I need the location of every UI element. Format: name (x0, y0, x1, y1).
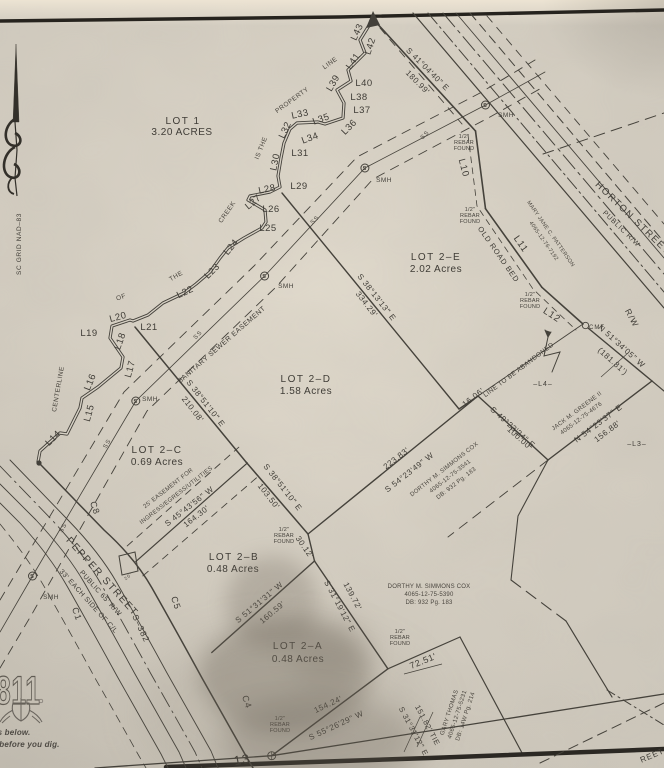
svg-text:SMH: SMH (278, 283, 294, 290)
svg-text:1.58 Acres: 1.58 Acres (280, 386, 332, 397)
svg-text:–L4–: –L4– (533, 381, 553, 388)
svg-text:L29: L29 (290, 181, 307, 192)
svg-text:3.20 ACRES: 3.20 ACRES (151, 127, 212, 138)
svg-text:LOT 2–E: LOT 2–E (411, 252, 461, 263)
svg-text:S: S (262, 274, 267, 280)
svg-text:FOUND: FOUND (454, 146, 475, 152)
svg-text:SMH: SMH (43, 594, 59, 601)
svg-text:L21: L21 (140, 322, 157, 333)
svg-text:FOUND: FOUND (460, 219, 481, 225)
svg-text:FOUND: FOUND (520, 304, 541, 310)
svg-text:4065-12-75-5390: 4065-12-75-5390 (404, 592, 454, 598)
svg-text:SMH: SMH (498, 112, 514, 119)
svg-text:–L3–: –L3– (627, 441, 647, 448)
svg-text:SMH: SMH (142, 396, 158, 403)
svg-text:S: S (363, 166, 368, 172)
svg-text:LOT 1: LOT 1 (165, 116, 200, 127)
svg-text:ll before you dig.: ll before you dig. (0, 740, 60, 749)
svg-text:SC GRID NAD–83: SC GRID NAD–83 (16, 213, 23, 275)
svg-text:L31: L31 (291, 148, 308, 159)
svg-text:DORTHY M. SIMMONS COX: DORTHY M. SIMMONS COX (388, 584, 471, 590)
svg-text:DB: 932 Pg. 183: DB: 932 Pg. 183 (405, 600, 452, 606)
svg-text:FOUND: FOUND (390, 641, 411, 647)
svg-text:L37: L37 (353, 105, 370, 116)
svg-text:LOT 2–C: LOT 2–C (132, 445, 183, 456)
svg-text:S: S (30, 574, 35, 580)
svg-text:L19: L19 (80, 328, 97, 339)
svg-text:811: 811 (0, 669, 41, 714)
svg-text:L26: L26 (262, 204, 279, 215)
svg-text:CMF: CMF (589, 325, 605, 331)
svg-text:2.02 Acres: 2.02 Acres (410, 264, 462, 275)
svg-text:FOUND: FOUND (274, 539, 295, 545)
svg-text:0.69 Acres: 0.69 Acres (131, 457, 183, 468)
svg-text:L38: L38 (350, 92, 367, 103)
svg-text:S: S (133, 399, 138, 405)
svg-text:L25: L25 (259, 223, 276, 234)
svg-text:at's below.: at's below. (0, 728, 30, 737)
svg-text:L40: L40 (355, 78, 372, 89)
svg-text:S: S (483, 103, 488, 109)
svg-text:SMH: SMH (376, 177, 392, 184)
svg-text:LOT 2–D: LOT 2–D (281, 374, 332, 385)
